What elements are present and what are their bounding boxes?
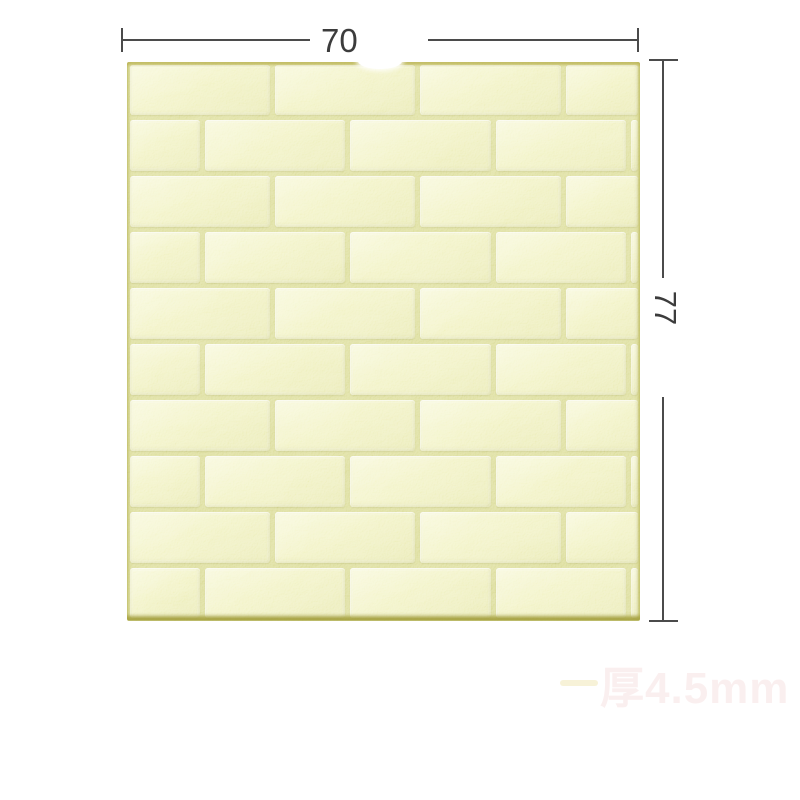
width-dimension-tick-right	[637, 28, 639, 52]
brick	[420, 512, 561, 563]
width-dimension-line-right	[428, 39, 638, 41]
brick	[275, 400, 415, 451]
brick	[130, 568, 200, 619]
erased-arrow-remnant	[560, 680, 598, 686]
brick	[275, 65, 415, 116]
brick	[566, 65, 638, 116]
brick	[130, 456, 200, 507]
brick	[205, 568, 345, 619]
brick-panel	[127, 62, 640, 621]
brick	[631, 456, 638, 507]
height-dimension-cap-bottom	[649, 620, 678, 622]
brick	[566, 176, 638, 227]
brick	[566, 512, 638, 563]
width-dimension-label: 70	[321, 24, 358, 57]
height-dimension-line-top	[662, 60, 664, 278]
brick	[631, 568, 638, 619]
brick	[130, 176, 270, 227]
brick	[566, 400, 638, 451]
brick	[130, 65, 270, 116]
brick	[130, 512, 270, 563]
height-dimension-line-bottom	[662, 397, 664, 620]
brick	[130, 344, 200, 395]
brick	[205, 120, 345, 171]
brick	[496, 456, 626, 507]
brick	[420, 65, 561, 116]
brick	[275, 512, 415, 563]
brick	[130, 232, 200, 283]
brick	[350, 344, 491, 395]
brick	[420, 176, 561, 227]
brick	[566, 288, 638, 339]
width-dimension-line-left	[122, 39, 310, 41]
brick	[275, 288, 415, 339]
brick	[350, 456, 491, 507]
brick	[631, 120, 638, 171]
brick	[130, 120, 200, 171]
brick	[496, 120, 626, 171]
brick	[275, 176, 415, 227]
brick	[631, 344, 638, 395]
brick	[420, 400, 561, 451]
brick	[350, 232, 491, 283]
brick	[496, 344, 626, 395]
brick	[496, 232, 626, 283]
brick	[350, 120, 491, 171]
brick	[631, 232, 638, 283]
product-dimension-diagram: 70 77	[0, 0, 800, 800]
brick	[205, 456, 345, 507]
brick	[420, 288, 561, 339]
brick	[496, 568, 626, 619]
brick	[130, 400, 270, 451]
brick	[205, 232, 345, 283]
height-dimension-label: 77	[645, 287, 687, 329]
watermark-remnant-text: 厚4.5mm	[600, 652, 789, 716]
brick	[205, 344, 345, 395]
brick	[130, 288, 270, 339]
brick-rows	[127, 62, 640, 621]
brick	[350, 568, 491, 619]
